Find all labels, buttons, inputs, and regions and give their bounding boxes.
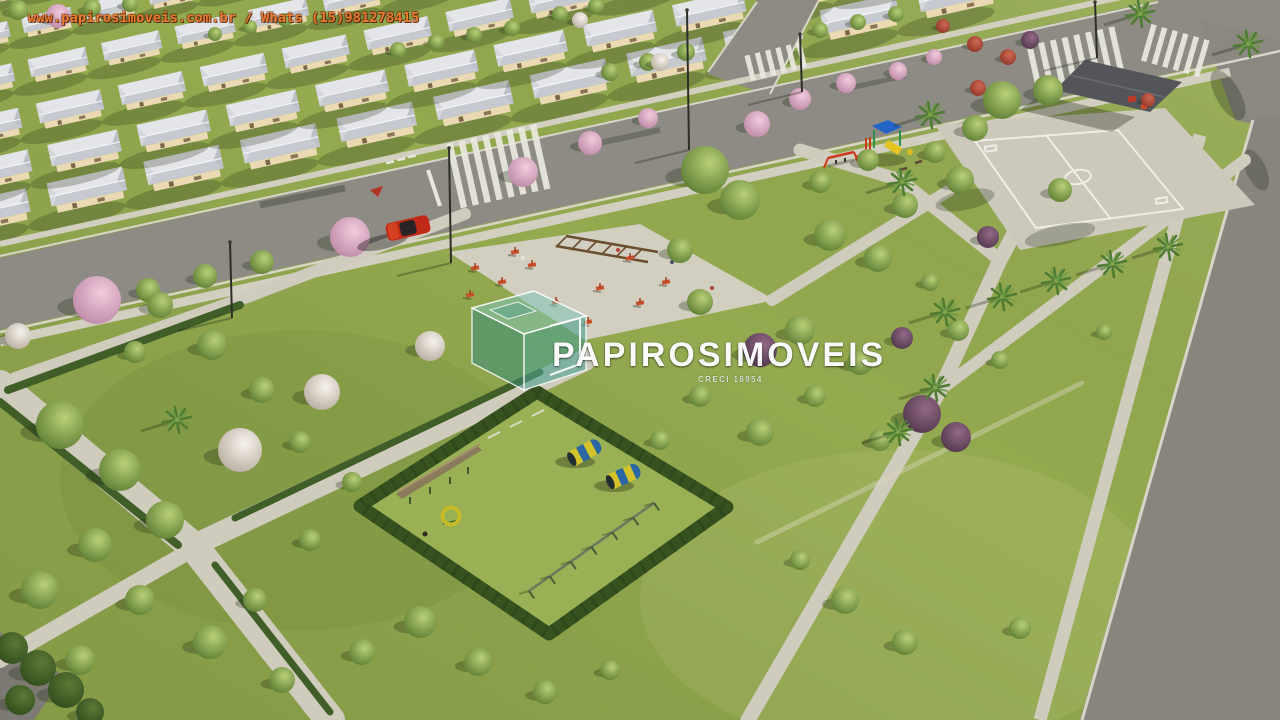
tree <box>428 34 444 50</box>
tree <box>5 685 35 715</box>
tree <box>689 385 711 407</box>
tree <box>415 331 445 361</box>
tree <box>638 108 658 128</box>
tree <box>850 14 866 30</box>
tree <box>1096 324 1112 340</box>
tree <box>962 115 988 141</box>
tree <box>789 88 811 110</box>
tree <box>572 12 588 28</box>
tree <box>720 180 760 220</box>
tree <box>243 588 267 612</box>
person <box>521 256 525 260</box>
tree <box>390 42 406 58</box>
tree <box>600 660 620 680</box>
tree <box>785 315 815 345</box>
tree <box>193 625 227 659</box>
tree <box>967 36 983 52</box>
tree <box>304 374 340 410</box>
tree <box>249 377 275 403</box>
tree <box>946 166 974 194</box>
tree <box>218 428 262 472</box>
tree <box>73 276 121 324</box>
tree <box>744 111 770 137</box>
tree <box>743 333 777 367</box>
tree <box>404 606 436 638</box>
scene-illustration <box>0 0 1280 720</box>
tree <box>21 571 59 609</box>
tree <box>8 0 28 20</box>
tree <box>809 171 831 193</box>
watermark-contact-text: www.papirosimoveis.com.br / Whats (15)98… <box>28 10 419 26</box>
tree <box>125 585 155 615</box>
tree <box>269 667 295 693</box>
tree <box>124 341 146 363</box>
tree <box>864 244 892 272</box>
tree <box>889 62 907 80</box>
tree <box>891 327 913 349</box>
tree <box>1021 31 1039 49</box>
tree <box>746 418 774 446</box>
tree <box>924 141 946 163</box>
tree <box>977 226 999 248</box>
tree <box>65 645 95 675</box>
tree <box>208 27 222 41</box>
tree <box>836 73 856 93</box>
aerial-condominium-render: www.papirosimoveis.com.br / Whats (15)98… <box>0 0 1280 720</box>
tree <box>330 217 370 257</box>
tree <box>892 192 918 218</box>
tree <box>193 264 217 288</box>
person <box>616 248 620 252</box>
tree <box>812 22 828 38</box>
tree <box>289 431 311 453</box>
tree <box>78 528 112 562</box>
tree <box>991 351 1009 369</box>
small-dog <box>423 532 428 537</box>
tree <box>464 648 492 676</box>
tree <box>681 146 729 194</box>
tree <box>677 43 695 61</box>
tree <box>601 63 619 81</box>
tree <box>197 330 227 360</box>
tree <box>1048 178 1072 202</box>
tree <box>299 529 321 551</box>
tree <box>941 422 971 452</box>
tree <box>814 219 846 251</box>
tree <box>146 501 184 539</box>
tree <box>578 131 602 155</box>
tree <box>936 19 950 33</box>
tree <box>466 27 482 43</box>
tree <box>504 20 520 36</box>
tree <box>1033 75 1063 105</box>
tree <box>1141 93 1155 107</box>
tree <box>5 323 31 349</box>
tree <box>650 430 670 450</box>
tree <box>970 80 986 96</box>
tree <box>926 49 942 65</box>
tree <box>903 395 941 433</box>
tree <box>921 273 939 291</box>
tree <box>36 401 84 449</box>
tree <box>349 639 375 665</box>
tree <box>552 6 568 22</box>
tree <box>147 292 173 318</box>
tree <box>790 550 810 570</box>
spring-toy <box>907 149 913 155</box>
tree <box>888 6 904 22</box>
tree <box>804 385 826 407</box>
tree <box>1000 49 1016 65</box>
tree <box>857 149 879 171</box>
tree <box>48 672 84 708</box>
tree <box>533 680 557 704</box>
tree <box>20 650 56 686</box>
tree <box>508 157 538 187</box>
tree <box>99 449 141 491</box>
tree <box>651 53 669 71</box>
tree <box>983 81 1021 119</box>
tree <box>831 586 859 614</box>
person <box>558 298 562 302</box>
tree <box>947 319 969 341</box>
tree <box>250 250 274 274</box>
tree <box>892 629 918 655</box>
person <box>710 286 714 290</box>
tree <box>342 472 362 492</box>
tree <box>1009 617 1031 639</box>
tree <box>687 289 713 315</box>
tree <box>667 237 693 263</box>
tree <box>847 349 873 375</box>
